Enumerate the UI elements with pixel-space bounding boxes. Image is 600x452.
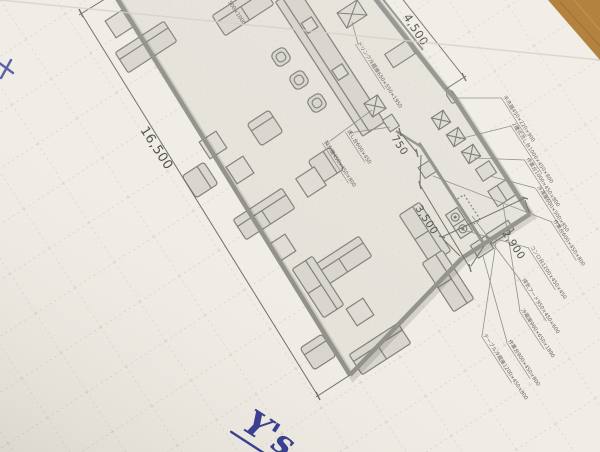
floor-plan-photo: ドリンク冷蔵庫650×550×1950 手洗器450×220×900 2槽式流し…: [0, 0, 600, 452]
plan-canvas: ドリンク冷蔵庫650×550×1950 手洗器450×220×900 2槽式流し…: [0, 0, 600, 452]
photo-vignette: [0, 0, 600, 452]
